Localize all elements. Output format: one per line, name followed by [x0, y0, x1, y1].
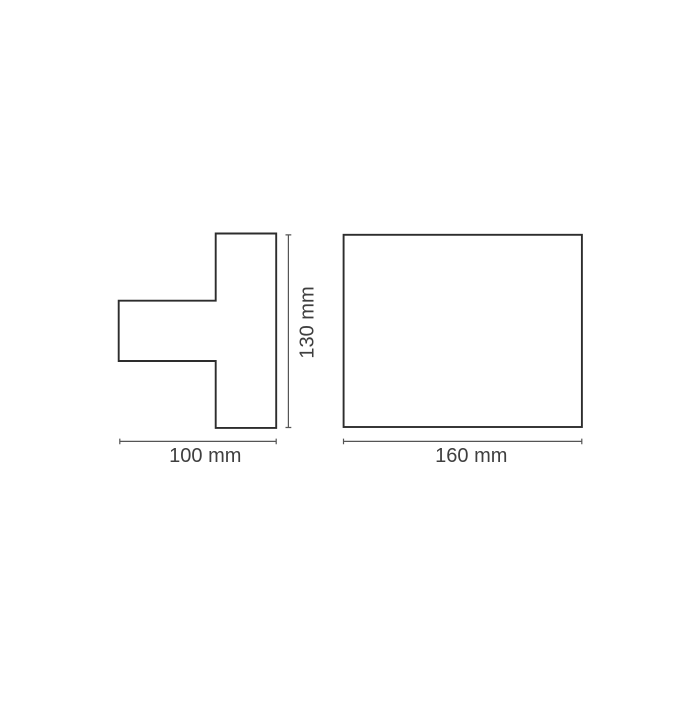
svg-text:160 mm: 160 mm [435, 445, 507, 467]
svg-text:100 mm: 100 mm [169, 445, 241, 467]
svg-text:130 mm: 130 mm [297, 286, 319, 358]
